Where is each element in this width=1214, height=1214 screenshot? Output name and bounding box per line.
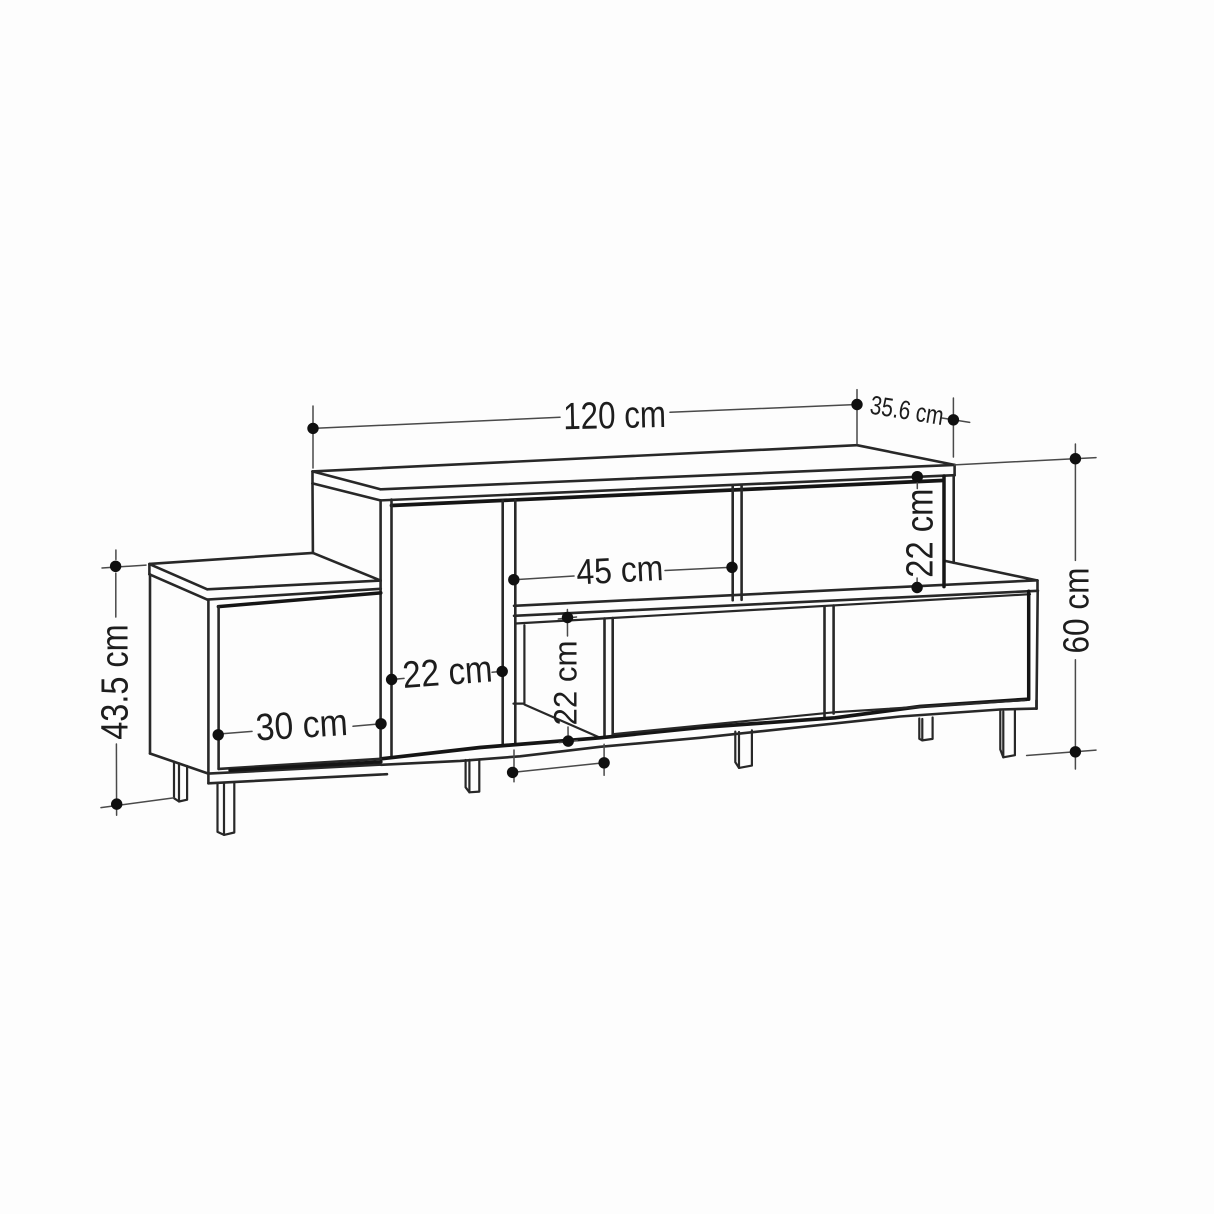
- svg-text:22 cm: 22 cm: [899, 489, 941, 578]
- svg-text:45 cm: 45 cm: [575, 547, 664, 592]
- svg-text:30 cm: 30 cm: [254, 702, 348, 750]
- svg-text:22 cm: 22 cm: [548, 641, 584, 726]
- svg-text:35.6 cm: 35.6 cm: [868, 390, 946, 431]
- svg-text:43.5 cm: 43.5 cm: [95, 624, 137, 740]
- svg-text:120 cm: 120 cm: [563, 394, 667, 438]
- svg-text:60 cm: 60 cm: [1056, 568, 1097, 654]
- svg-text:22 cm: 22 cm: [401, 648, 494, 696]
